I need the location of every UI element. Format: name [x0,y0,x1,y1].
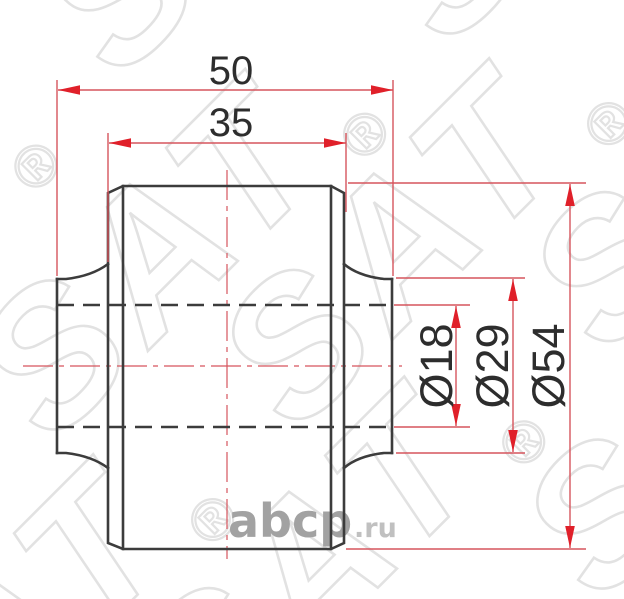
bushing-drawing: SAT ® SAT ® SAT ® SAT ® SAT ® SAT ® SAT … [0,0,624,599]
dimension-value-50: 50 [209,49,254,93]
arrow-left-icon [58,85,80,95]
arrow-right-icon [371,85,393,95]
abcp-watermark-tld-text: .ru [354,513,397,544]
abcp-watermark-text: abcp [228,494,352,548]
dimension-value-d54: Ø54 [523,323,574,408]
arrow-up-icon [508,279,518,301]
dimension-value-d18: Ø18 [411,323,462,408]
technical-drawing-page: SAT ® SAT ® SAT ® SAT ® SAT ® SAT ® SAT … [0,0,624,599]
dimension-value-35: 35 [209,101,254,145]
dimension-value-d29: Ø29 [467,323,518,408]
